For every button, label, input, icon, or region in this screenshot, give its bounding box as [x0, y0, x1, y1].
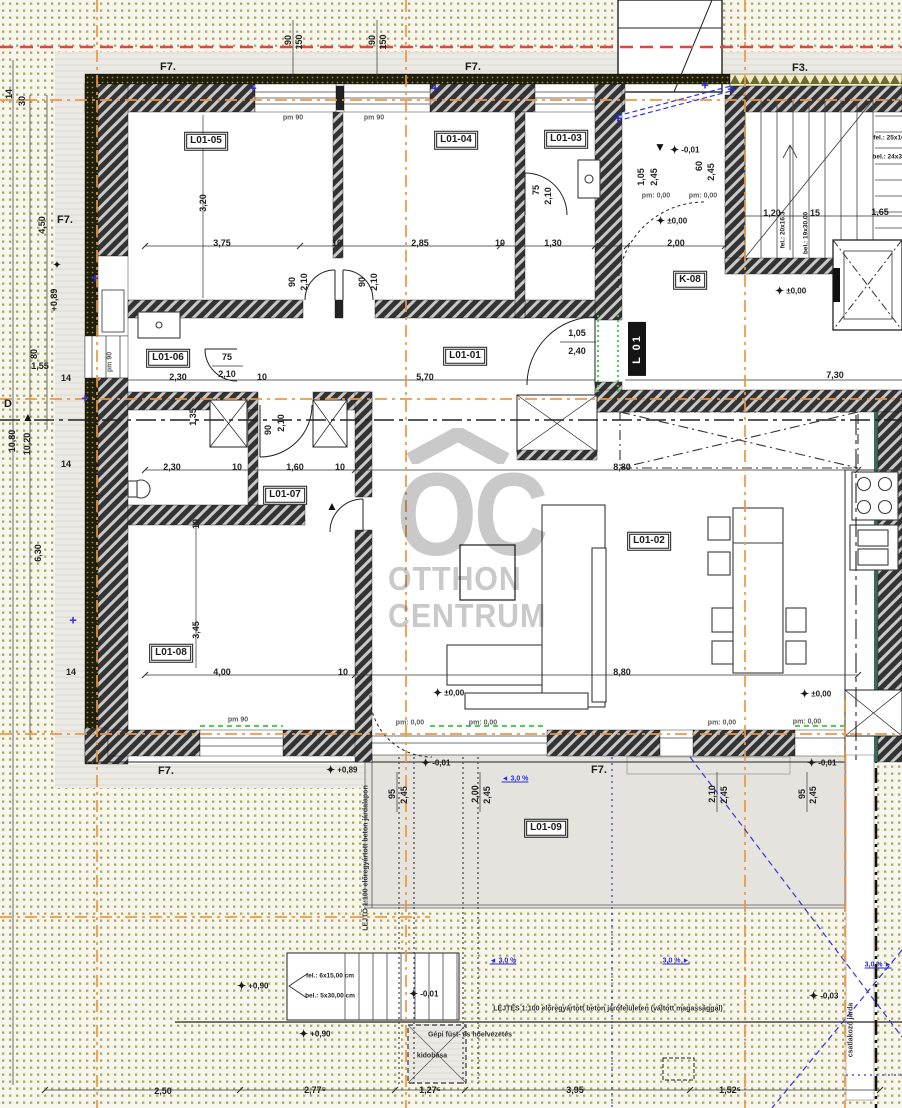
- axis-label: D: [4, 398, 12, 410]
- apartment-sign: L 01: [628, 322, 646, 376]
- dimension-label: 2,10: [218, 369, 236, 379]
- parapet-label: pm 90: [283, 115, 303, 122]
- dimension-label: 90: [367, 35, 377, 45]
- dimension-label: 10: [257, 372, 267, 382]
- dimension-label: 2,40: [568, 346, 586, 356]
- dimension-label: 1,35: [188, 408, 198, 426]
- direction-triangle-icon: ▲: [326, 499, 338, 513]
- axis-label: F7.: [591, 764, 607, 776]
- stair-note: fel.: 25x16: [873, 135, 902, 142]
- room-label: K-08: [675, 273, 705, 288]
- dimension-label: 80: [29, 349, 39, 359]
- dimension-label: 2,30: [163, 462, 181, 472]
- dimension-label: 90: [263, 425, 273, 435]
- dimension-label: 10: [191, 519, 201, 529]
- axis-label: F3.: [792, 62, 808, 74]
- dimension-label: 1,30: [544, 238, 562, 248]
- room-label: L01-05: [186, 134, 226, 149]
- dimension-label: 2,45: [719, 786, 729, 804]
- dimension-label: 95: [387, 789, 397, 799]
- dimension-label: 3,75: [213, 238, 231, 248]
- dimension-label: 60: [694, 161, 704, 171]
- direction-triangle-icon: ▲: [22, 410, 34, 424]
- dimension-label: 2,10: [276, 414, 286, 432]
- parapet-label: pm: 0,00: [708, 720, 736, 727]
- dimension-label: 2,45: [399, 786, 409, 804]
- survey-cross-icon: +: [69, 613, 77, 628]
- elevation-marker: +0,90: [299, 1028, 330, 1041]
- dimension-label: 10: [495, 238, 505, 248]
- dimension-label: 6,30: [33, 544, 43, 562]
- elevation-marker: ±0,00: [775, 285, 806, 298]
- axis-label: F7.: [465, 61, 481, 73]
- stair-note: bel.: 19x30,00: [803, 212, 810, 254]
- slope-label: 3,0 %: [865, 962, 892, 969]
- dimension-label: 3,20: [198, 194, 208, 212]
- elevation-marker: ±0,00: [433, 687, 464, 700]
- dimension-label: 150: [294, 34, 304, 49]
- parapet-label: pm: 0,00: [469, 720, 497, 727]
- survey-cross-icon: +: [614, 111, 622, 126]
- dimension-label: 90: [357, 277, 367, 287]
- dimension-label: 4,50: [37, 216, 47, 234]
- survey-cross-icon: +: [249, 81, 257, 96]
- slope-label: 3,0 %: [490, 958, 517, 965]
- parapet-label: pm: 0,00: [793, 719, 821, 726]
- stair-note: fel.: 20x16,3: [780, 212, 787, 249]
- plan-note: Gépi füst- és hőelvezetés: [428, 1032, 512, 1039]
- survey-cross-icon: +: [727, 82, 735, 97]
- elevation-marker: +0,90: [237, 980, 268, 993]
- stair-note: fel.: 6x15,00 cm: [306, 973, 354, 980]
- dimension-label: 2,45: [706, 163, 716, 181]
- dimension-label: 3,95: [566, 1085, 584, 1095]
- stair-note: bel.: 5x30,00 cm: [305, 993, 355, 1000]
- room-label: L01-07: [265, 488, 305, 503]
- dimension-label: 10: [332, 238, 342, 248]
- plan-note: LEJTŐ 1:100 előregyártott beton járdalap…: [363, 785, 370, 930]
- parapet-label: pm: 0,00: [689, 193, 717, 200]
- axis-label: F7.: [158, 765, 174, 777]
- dimension-label: 150: [378, 34, 388, 49]
- dimension-label: 2,45: [808, 786, 818, 804]
- dimension-label: 1,05: [636, 168, 646, 186]
- dimension-label: 7,30: [826, 370, 844, 380]
- dimension-label: 15: [810, 208, 820, 218]
- dimension-label: 10: [232, 462, 242, 472]
- room-label: L01-08: [151, 646, 191, 661]
- dimension-label: 90: [283, 35, 293, 45]
- dimension-label: 1,27⁵: [419, 1085, 441, 1095]
- dimension-label: 10,20: [22, 433, 32, 456]
- dimension-label: 14: [66, 667, 76, 677]
- elevation-marker: -0,01: [409, 988, 438, 1001]
- dimension-label: 14: [4, 89, 14, 99]
- slope-label: 3,0 %: [663, 958, 690, 965]
- dimension-label: 75: [531, 185, 541, 195]
- survey-cross-icon: +: [701, 78, 709, 93]
- axis-label: F7.: [57, 214, 73, 226]
- dimension-label: 1,65: [871, 207, 889, 217]
- room-label: L01-01: [445, 349, 485, 364]
- dimension-label: 1,05: [568, 328, 586, 338]
- survey-cross-icon: +: [431, 81, 439, 96]
- elevation-marker: -0,01: [421, 757, 450, 770]
- elevation-marker: ±0,00: [800, 688, 831, 701]
- dimension-label: 8,80: [613, 462, 631, 472]
- room-label: L01-03: [546, 132, 586, 147]
- dimension-label: 2,10: [299, 273, 309, 291]
- dimension-label: 2,30: [169, 372, 187, 382]
- room-label: L01-04: [436, 133, 476, 148]
- floor-plan-canvas: OC OTTHON CENTRUM L01-05L01-04L01-03L01-…: [0, 0, 902, 1108]
- elevation-marker: +0,89: [326, 764, 357, 777]
- dimension-label: 2,10: [369, 273, 379, 291]
- dimension-label: 8,80: [613, 667, 631, 677]
- dimension-label: 2,00: [470, 785, 480, 803]
- dimension-label: 90: [287, 277, 297, 287]
- dimension-label: 75: [222, 352, 232, 362]
- dimension-label: 2,10: [543, 187, 553, 205]
- survey-cross-icon: +: [91, 271, 99, 286]
- elevation-marker: -0,01: [807, 757, 836, 770]
- dimension-label: 2,00: [667, 238, 685, 248]
- dimension-label: 1,55: [31, 361, 49, 371]
- stair-note: bel.: 24x30: [872, 154, 902, 161]
- dimension-label: 1,60: [286, 462, 304, 472]
- plan-note: kidobása: [417, 1053, 447, 1060]
- elevation-marker: -0,01: [670, 144, 699, 157]
- dimension-label: 2,50: [154, 1086, 172, 1096]
- dimension-label: 95: [797, 789, 807, 799]
- parapet-label: pm 90: [107, 352, 114, 372]
- dimension-label: 14: [61, 373, 71, 383]
- survey-cross-icon: +: [81, 391, 89, 406]
- dimension-label: 2,77⁵: [304, 1085, 326, 1095]
- room-label: L01-09: [526, 821, 566, 836]
- survey-star-icon: ✦: [52, 259, 61, 272]
- dimension-label: 30: [17, 96, 27, 106]
- dimension-label: 10: [335, 462, 345, 472]
- elevation-marker: -0,03: [809, 990, 838, 1003]
- dimension-label: +0,89: [49, 289, 59, 312]
- dimension-label: 1,20: [763, 208, 781, 218]
- text-overlay: L01-05L01-04L01-03L01-01L01-06L01-07L01-…: [0, 0, 902, 1108]
- parapet-label: pm 90: [364, 115, 384, 122]
- room-label: L01-02: [629, 534, 669, 549]
- parapet-label: pm: 0,00: [396, 720, 424, 727]
- dimension-label: 2,85: [411, 238, 429, 248]
- plan-note: csatlakozó járda: [848, 1003, 855, 1057]
- dimension-label: 10: [338, 667, 348, 677]
- dimension-label: 1,52⁵: [719, 1085, 741, 1095]
- dimension-label: 10,80: [7, 430, 17, 453]
- direction-triangle-icon: ▼: [654, 140, 666, 154]
- dimension-label: 5,70: [416, 372, 434, 382]
- room-label: L01-06: [148, 351, 188, 366]
- dimension-label: 2,45: [482, 786, 492, 804]
- dimension-label: 2,10: [707, 785, 717, 803]
- plan-note: LEJTÉS 1:100 előregyártott beton járófel…: [493, 1006, 723, 1013]
- dimension-label: 14: [61, 459, 71, 469]
- parapet-label: pm 90: [228, 717, 248, 724]
- parapet-label: pm: 0,00: [642, 193, 670, 200]
- dimension-label: 4,00: [213, 667, 231, 677]
- dimension-label: 3,45: [191, 621, 201, 639]
- elevation-marker: ±0,00: [656, 215, 687, 228]
- slope-label: 3,0 %: [502, 776, 529, 783]
- dimension-label: 2,45: [649, 168, 659, 186]
- axis-label: F7.: [160, 61, 176, 73]
